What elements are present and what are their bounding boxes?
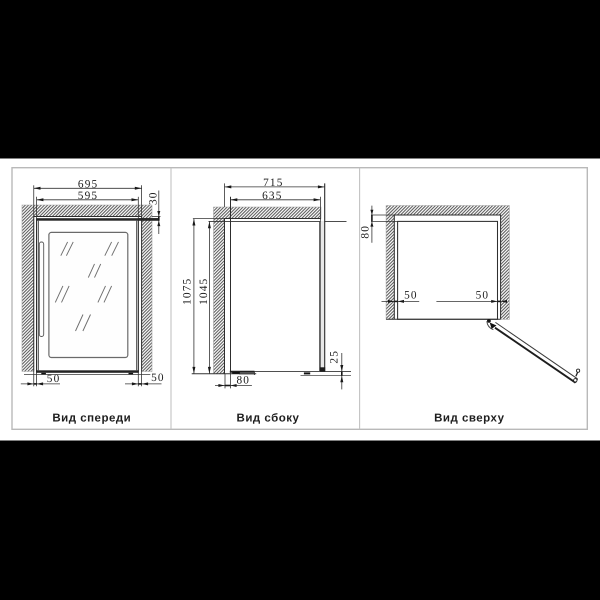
svg-text:50: 50 xyxy=(151,372,165,384)
svg-text:25: 25 xyxy=(328,350,340,364)
svg-text:Вид сбоку: Вид сбоку xyxy=(237,412,300,424)
svg-text:1075: 1075 xyxy=(181,278,193,305)
svg-text:80: 80 xyxy=(359,225,371,239)
svg-text:80: 80 xyxy=(236,375,250,387)
svg-text:50: 50 xyxy=(47,373,61,385)
svg-text:595: 595 xyxy=(78,190,98,202)
svg-text:30: 30 xyxy=(148,191,160,205)
svg-text:50: 50 xyxy=(476,289,490,301)
svg-text:1045: 1045 xyxy=(198,278,210,305)
svg-text:715: 715 xyxy=(263,177,283,189)
svg-text:635: 635 xyxy=(262,190,282,202)
svg-text:695: 695 xyxy=(78,179,98,191)
svg-text:Вид спереди: Вид спереди xyxy=(52,412,131,424)
svg-text:50: 50 xyxy=(404,289,418,301)
svg-text:Вид сверху: Вид сверху xyxy=(434,412,504,424)
